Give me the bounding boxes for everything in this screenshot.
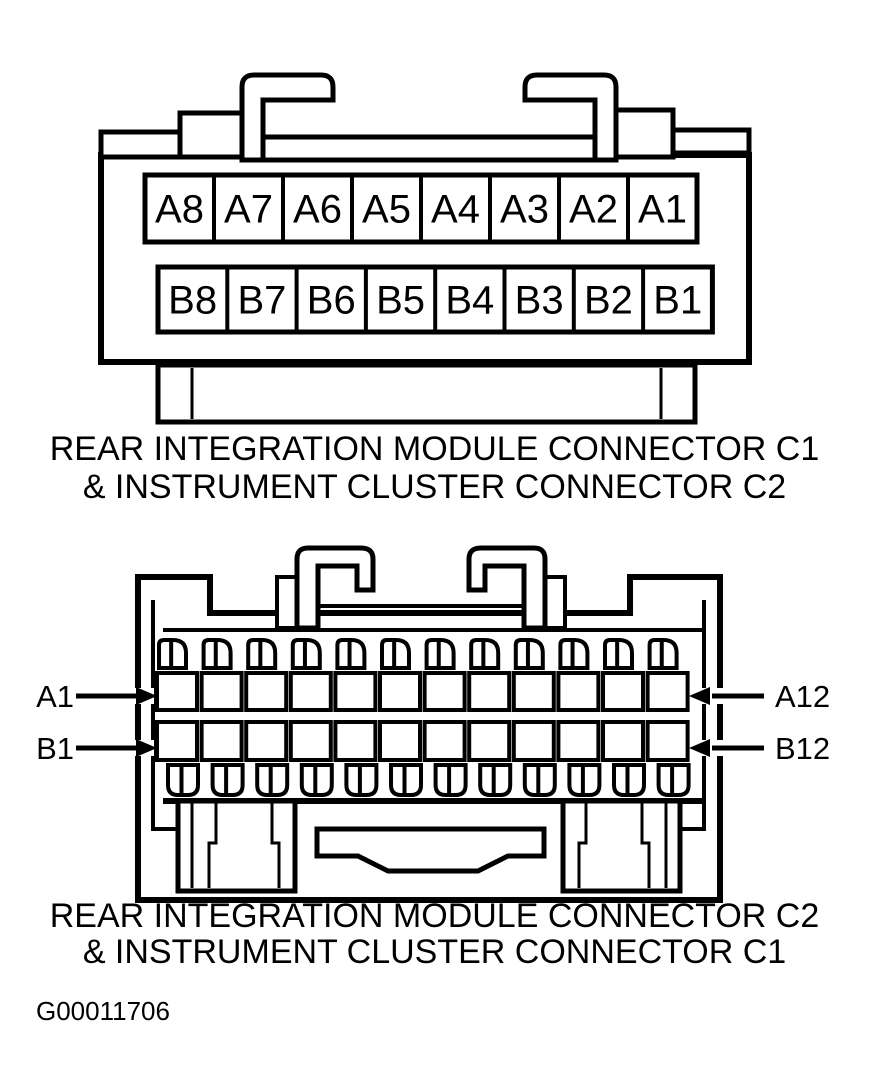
pin-label-A6: A6 (293, 188, 342, 232)
pin-cell (246, 673, 286, 710)
wiring-diagram-page: A8A7A6A5A4A3A2A1 B8B7B6B5B4B3B2B1 REAR I… (0, 0, 869, 1081)
pin-cell (157, 673, 197, 710)
connector2-caption: REAR INTEGRATION MODULE CONNECTOR C2 & I… (0, 898, 869, 970)
connector1-diagram: A8A7A6A5A4A3A2A1 B8B7B6B5B4B3B2B1 (0, 0, 869, 430)
pin-cell (246, 722, 286, 760)
pin-label-B4: B4 (445, 279, 494, 323)
connector2-right-latch-step (545, 577, 565, 628)
pin-callout-a12: A12 (775, 679, 830, 714)
connector1-top-band (242, 137, 616, 160)
connector1-caption: REAR INTEGRATION MODULE CONNECTOR C1 & I… (0, 430, 869, 506)
pin-cell (425, 673, 465, 710)
connector2-left-leg (178, 801, 295, 891)
pin-cell (558, 673, 598, 710)
connector1-caption-line2: & INSTRUMENT CLUSTER CONNECTOR C2 (0, 468, 869, 506)
pin-label-A7: A7 (224, 188, 273, 232)
pin-cell (157, 722, 197, 760)
pin-cell (558, 722, 598, 760)
pin-cell (648, 673, 688, 710)
pin-cell (380, 673, 420, 710)
pin-cell (335, 673, 375, 710)
pin-cell (603, 673, 643, 710)
connector2-caption-line1: REAR INTEGRATION MODULE CONNECTOR C2 (0, 898, 869, 934)
pin-cell (202, 722, 242, 760)
connector1-right-tab (673, 130, 749, 153)
pin-callout-b12: B12 (775, 731, 830, 766)
pin-label-A4: A4 (431, 188, 480, 232)
connector1-left-tab (101, 132, 180, 157)
pin-cell (202, 673, 242, 710)
pin-label-B7: B7 (237, 279, 286, 323)
pin-cell (469, 673, 509, 710)
connector2-diagram: A1 B1 A12 B12 (0, 540, 869, 912)
connector2-right-leg (563, 801, 680, 891)
pin-label-B3: B3 (515, 279, 564, 323)
pin-cell (603, 722, 643, 760)
pin-label-B6: B6 (307, 279, 356, 323)
pin-callout-a1: A1 (36, 679, 74, 714)
connector1-caption-line1: REAR INTEGRATION MODULE CONNECTOR C1 (0, 430, 869, 468)
pin-cell (514, 722, 554, 760)
pin-cell (291, 722, 331, 760)
pin-label-B5: B5 (376, 279, 425, 323)
pin-label-A2: A2 (569, 188, 618, 232)
connector1-left-step (180, 113, 244, 157)
connector2-caption-line2: & INSTRUMENT CLUSTER CONNECTOR C1 (0, 934, 869, 970)
figure-id: G00011706 (36, 996, 170, 1027)
pin-cell (514, 673, 554, 710)
pin-cell (425, 722, 465, 760)
pin-cell (380, 722, 420, 760)
pin-cell (469, 722, 509, 760)
pin-label-A5: A5 (362, 188, 411, 232)
connector2-left-latch-step (277, 577, 297, 628)
pin-label-B1: B1 (653, 279, 702, 323)
connector1-pin-row-a: A8A7A6A5A4A3A2A1 (145, 175, 697, 242)
pin-callout-b1: B1 (36, 731, 74, 766)
pin-label-A1: A1 (638, 188, 687, 232)
connector1-bottom-extension (158, 365, 695, 422)
connector1-pin-row-b: B8B7B6B5B4B3B2B1 (158, 267, 712, 332)
pin-cell (648, 722, 688, 760)
pin-cell (291, 673, 331, 710)
pin-label-A8: A8 (155, 188, 204, 232)
pin-label-B8: B8 (168, 279, 217, 323)
pin-label-B2: B2 (584, 279, 633, 323)
pin-label-A3: A3 (500, 188, 549, 232)
pin-cell (335, 722, 375, 760)
connector1-right-step (616, 110, 673, 157)
